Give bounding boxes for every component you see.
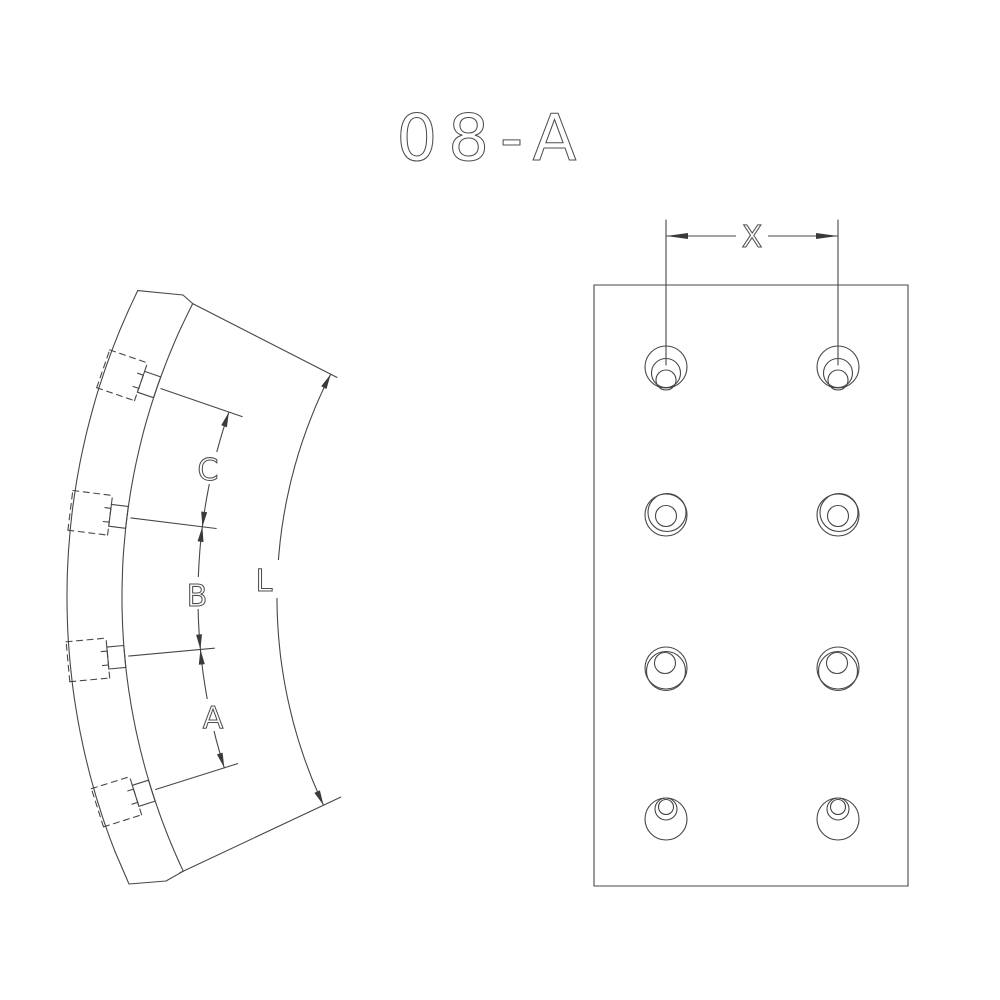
- rivet-hole-countersink-circle: [656, 506, 677, 527]
- dimension-arrow: [196, 634, 202, 649]
- rivet-hole-neck-tick: [128, 789, 134, 791]
- rivet-counterbore-hidden-line: [68, 530, 108, 535]
- drawing-title: 08-A: [397, 102, 588, 176]
- rivet-hole-countersink-circle: [659, 800, 674, 815]
- dimension-arrow: [314, 790, 323, 805]
- rivet-hole-neck-tick: [103, 665, 109, 666]
- face-view-flat-lining: [594, 220, 908, 886]
- rivet-hole-outer-circle: [817, 647, 859, 689]
- rivet-hole-outline: [109, 526, 126, 528]
- rivet-hole-countersink-circle: [828, 506, 849, 527]
- rivet-hole-outer-circle: [645, 798, 687, 840]
- lining-bottom-end-cap: [115, 852, 183, 884]
- rivet-counterbore-hidden-line: [97, 388, 135, 401]
- rivet-counterbore-hidden-line: [70, 678, 110, 682]
- dim-label-a: A: [203, 701, 224, 736]
- dimension-arrow: [221, 412, 229, 427]
- rivet-hole-countersink-circle: [647, 652, 686, 691]
- rivet-hole-outline: [145, 371, 161, 377]
- rivet-hole-countersink-circle: [648, 494, 686, 532]
- rivet-hole-outline: [109, 667, 126, 669]
- rivet-hole-countersink-circle: [655, 653, 676, 674]
- technical-drawing: 08-A X C B A L: [0, 0, 1000, 1000]
- rivet-hole-outline: [126, 507, 129, 529]
- dimension-arrow: [816, 233, 838, 239]
- rivet-hole-outline: [139, 801, 155, 806]
- arc-length-dimension-arc: [277, 374, 331, 805]
- lining-face-outline: [594, 285, 908, 886]
- rivet-counterbore-hidden-line: [110, 350, 148, 363]
- rivet-hole-outline: [124, 646, 126, 668]
- rivet-hole-outer-circle: [817, 798, 859, 840]
- rivet-counterbore-hidden-line: [91, 777, 129, 789]
- dim-label-c: C: [198, 453, 219, 488]
- rivet-hole-neck-tick: [101, 651, 107, 652]
- rivet-counterbore-hidden-end: [97, 350, 110, 388]
- rivet-counterbore-hidden-line: [73, 491, 113, 496]
- dimension-extension-line: [161, 389, 242, 417]
- rivet-hole-neck-tick: [105, 508, 111, 509]
- dimension-extension-line: [156, 764, 238, 790]
- dimension-arrow: [666, 233, 688, 239]
- rivet-hole-outline: [137, 392, 153, 398]
- rivet-hole-outline: [107, 647, 109, 669]
- lining-top-end-cap: [138, 291, 193, 304]
- dim-label-b: B: [187, 579, 208, 614]
- rivet-hole-neck-tick: [103, 522, 109, 523]
- rivet-hole-outline: [149, 780, 156, 801]
- rivet-hole-outline: [154, 377, 161, 398]
- rivet-hole-countersink-circle: [819, 652, 858, 691]
- lining-outer-edge-arc: [67, 291, 138, 852]
- rivet-hole-outline: [111, 504, 128, 506]
- rivet-hole-countersink-circle: [831, 800, 846, 815]
- label-masks: [181, 221, 768, 731]
- rivet-hole-outer-circle: [817, 494, 859, 536]
- rivet-hole-neck-tick: [132, 802, 138, 804]
- dim-label-x: X: [742, 220, 763, 255]
- rivet-hole-neck-tick: [138, 373, 144, 375]
- rivet-hole-outer-circle: [645, 647, 687, 689]
- dim-label-l: L: [256, 564, 273, 599]
- dimension-arrow: [199, 650, 205, 665]
- rivet-hole-outline: [107, 646, 124, 648]
- rivet-counterbore-hidden-line: [104, 815, 142, 827]
- dimension-arrow: [217, 753, 224, 768]
- arc-length-extension-line-bottom: [180, 797, 341, 873]
- rivet-counterbore-hidden-line: [66, 638, 106, 642]
- rivet-counterbore-hidden-end: [91, 789, 103, 827]
- rivet-hole-outline: [132, 780, 148, 785]
- rivet-hole-countersink-circle: [827, 653, 848, 674]
- rivet-hole-neck-tick: [133, 387, 139, 389]
- drawing-sheet: 08-A X C B A L: [0, 0, 1000, 1000]
- dimension-arrow: [321, 374, 331, 389]
- arc-length-extension-line-top: [193, 304, 337, 378]
- rivet-hole-countersink-circle: [820, 494, 858, 532]
- rivet-hole-outer-circle: [645, 494, 687, 536]
